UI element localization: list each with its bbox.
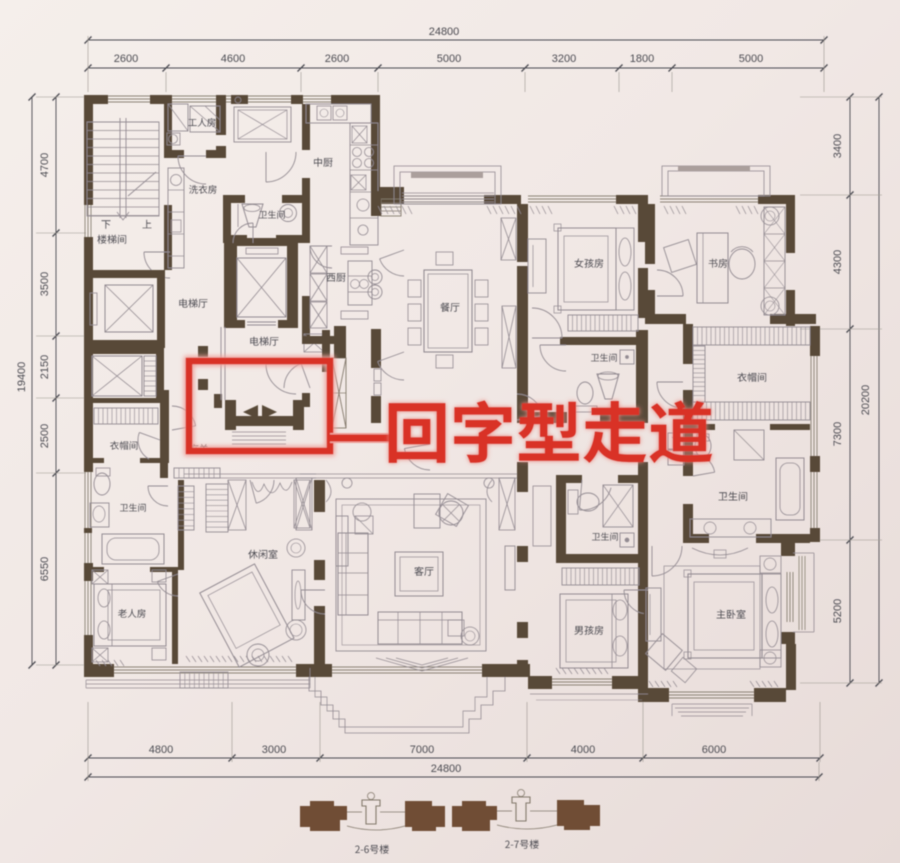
svg-text:1800: 1800 [630,53,654,65]
svg-text:5000: 5000 [739,53,763,65]
svg-text:2150: 2150 [39,355,51,379]
svg-text:5200: 5200 [832,599,844,623]
svg-text:4000: 4000 [571,744,595,756]
svg-text:20200: 20200 [860,385,872,416]
svg-text:4600: 4600 [221,53,245,65]
svg-text:3400: 3400 [832,134,844,158]
svg-text:2500: 2500 [39,424,51,448]
svg-text:3500: 3500 [39,272,51,296]
svg-text:2600: 2600 [114,53,138,65]
svg-text:24800: 24800 [429,26,460,38]
svg-text:5000: 5000 [437,53,461,65]
svg-text:3200: 3200 [552,53,576,65]
svg-text:4700: 4700 [39,153,51,177]
svg-text:7000: 7000 [410,744,434,756]
svg-text:4800: 4800 [149,744,173,756]
svg-text:2600: 2600 [325,53,349,65]
svg-text:3000: 3000 [262,744,286,756]
svg-text:24800: 24800 [431,763,462,775]
svg-text:6000: 6000 [702,744,726,756]
svg-text:19400: 19400 [16,362,28,393]
svg-text:4300: 4300 [832,250,844,274]
svg-text:7300: 7300 [832,422,844,446]
svg-text:6550: 6550 [39,557,51,581]
